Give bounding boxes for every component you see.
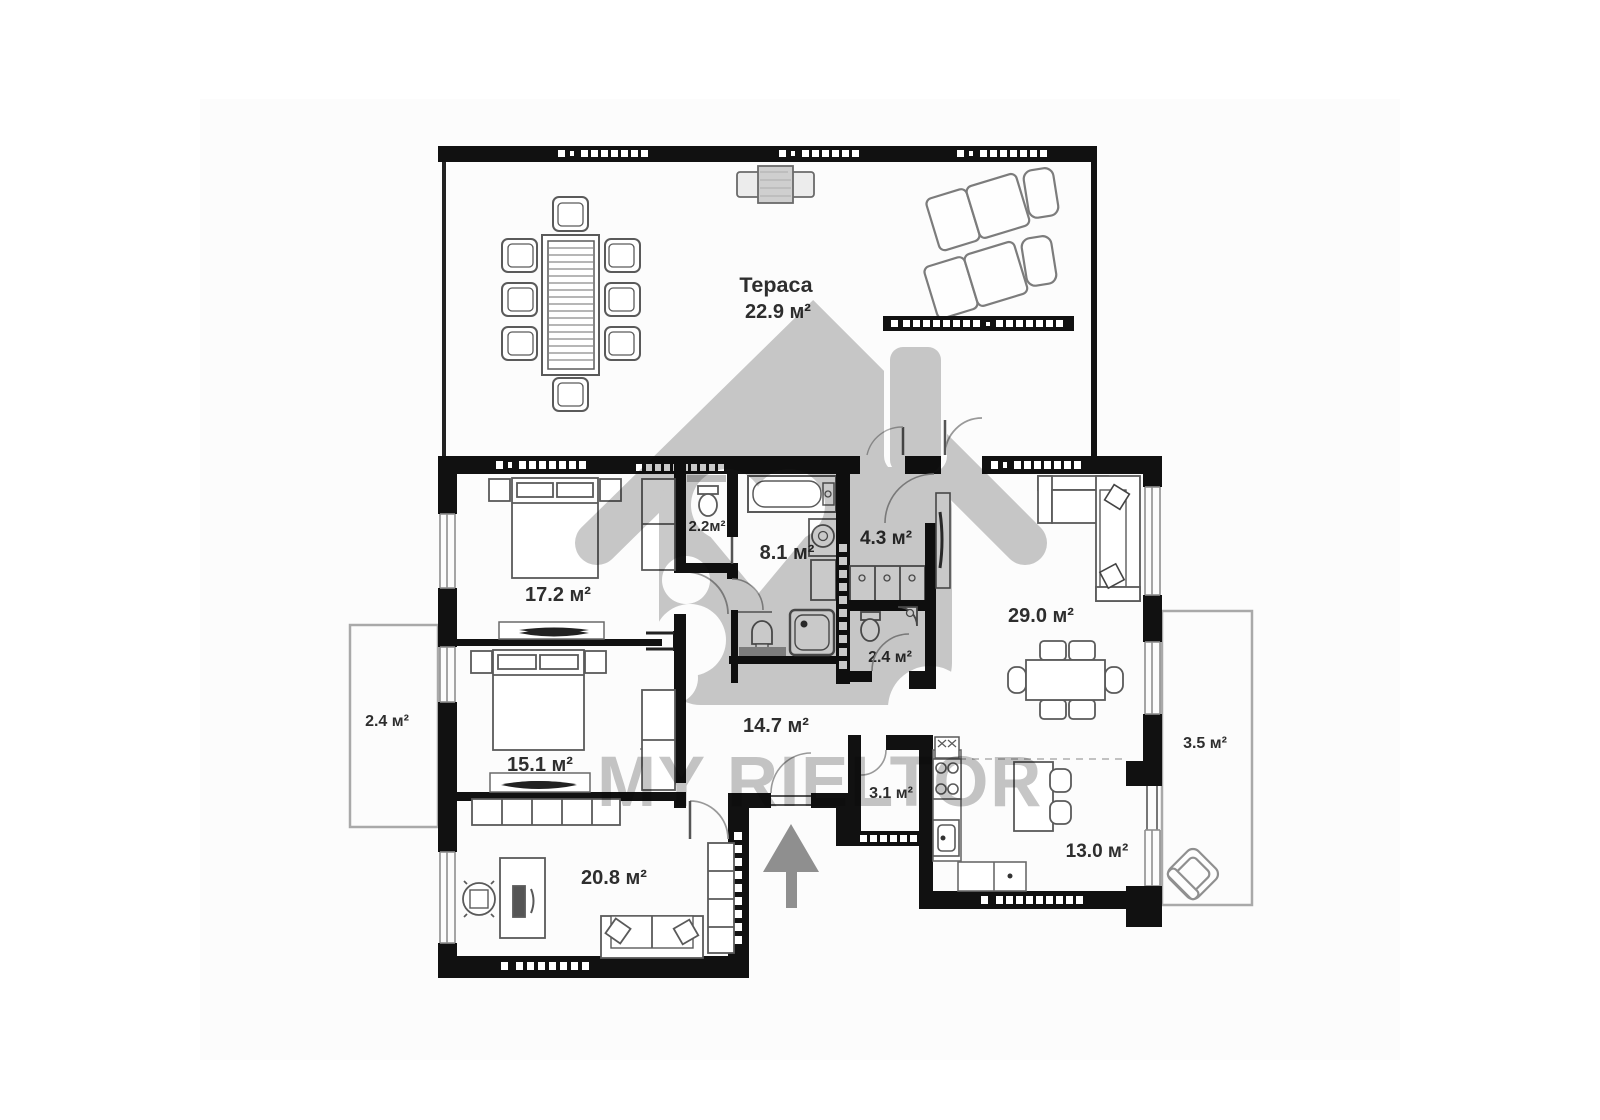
svg-text:15.1 м²: 15.1 м² <box>507 754 573 776</box>
svg-text:17.2 м²: 17.2 м² <box>525 584 591 606</box>
svg-text:14.7 м²: 14.7 м² <box>743 715 809 737</box>
svg-text:20.8 м²: 20.8 м² <box>581 867 647 889</box>
svg-text:29.0 м²: 29.0 м² <box>1008 605 1074 627</box>
svg-text:MY RIELTOR: MY RIELTOR <box>597 743 1043 822</box>
svg-text:3.5 м²: 3.5 м² <box>1183 735 1227 752</box>
svg-text:2.4 м²: 2.4 м² <box>365 713 409 730</box>
svg-text:13.0 м²: 13.0 м² <box>1066 841 1129 862</box>
svg-text:Тераса: Тераса <box>739 273 813 297</box>
